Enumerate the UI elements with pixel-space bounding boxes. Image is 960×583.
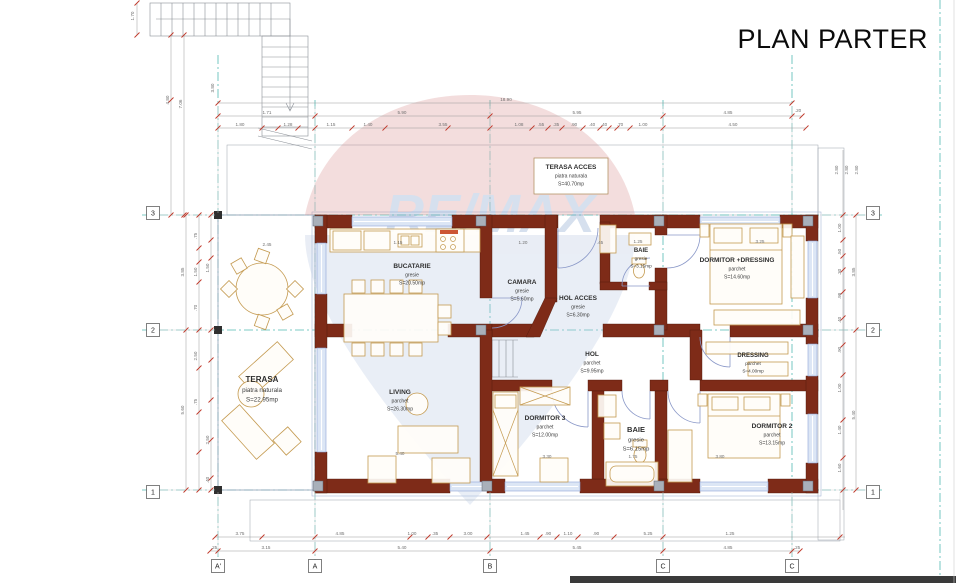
room-area: S=40.70mp — [558, 181, 584, 187]
dim-label: 3.30 — [543, 454, 552, 459]
dim-label: 1.25 — [726, 531, 735, 536]
dim-label: 1.71 — [263, 110, 272, 115]
room-label: TERASA — [246, 375, 279, 384]
dim-label: 5.40 — [396, 451, 405, 456]
dim-label: 3.00 — [464, 531, 473, 536]
grid-bubble-label: C — [660, 564, 665, 571]
dim-label: 1.10 — [564, 531, 573, 536]
dormitor-dressing-door — [667, 235, 700, 268]
dim-label: 1.80 — [236, 122, 245, 127]
dim-label: .90 — [545, 531, 552, 536]
dormitor2-door — [668, 391, 700, 423]
room-area: S=20.50mp — [399, 280, 425, 286]
plan-title: PLAN PARTER — [737, 24, 928, 55]
room-label: DORMITOR 3 — [525, 415, 566, 422]
dim-label: 18.90 — [500, 97, 512, 102]
wardrobe — [714, 310, 800, 325]
right-sidewalk-paving — [818, 148, 844, 540]
dim-label: 1.00 — [837, 383, 842, 392]
dim-label: 1.45 — [521, 531, 530, 536]
dim-label: 7.06 — [178, 99, 183, 108]
dim-label: 1.75 — [629, 454, 638, 459]
footer-bar — [570, 576, 956, 583]
dim-label: 3.80 — [716, 454, 725, 459]
living-sofa — [398, 426, 458, 453]
dim-label: .35 — [432, 531, 439, 536]
dim-label: 1.08 — [515, 122, 524, 127]
dim-label: 3.80 — [210, 83, 215, 92]
dim-label: 2.45 — [263, 242, 272, 247]
room-finish: gresie — [635, 256, 648, 261]
dim-label: .25 — [211, 545, 218, 550]
dim-label: 1.15 — [327, 122, 336, 127]
dim-label: 1.70 — [130, 11, 135, 20]
dim-label: .70 — [193, 304, 198, 311]
room-finish: piatra naturala — [555, 174, 588, 180]
room-area: S=14.60mp — [724, 274, 750, 280]
grid-bubble-label: 2 — [151, 328, 155, 335]
dim-label: .90 — [593, 531, 600, 536]
dim-label: 1.60 — [837, 463, 842, 472]
room-label: TERASA ACCES — [546, 164, 597, 171]
wardrobe-dormitor2 — [668, 430, 692, 482]
grid-bubble-label: 3 — [151, 211, 155, 218]
room-finish: gresie — [515, 289, 529, 295]
dim-label: 1.00 — [639, 122, 648, 127]
room-label: DRESSING — [737, 353, 769, 359]
room-label: BAIE — [634, 248, 648, 254]
room-label: HOL — [585, 351, 599, 358]
dim-label: 3.25 — [756, 239, 765, 244]
room-finish: gresie — [628, 438, 644, 444]
dim-label: .25 — [794, 545, 801, 550]
grid-bubble-label: A — [313, 564, 318, 571]
room-area: S=4.00mp — [742, 368, 764, 373]
dim-label: 3.85 — [851, 267, 856, 276]
dim-label: 5.40 — [398, 545, 407, 550]
room-area: S=6.15mp — [623, 446, 650, 452]
room-area: S=12.00mp — [532, 432, 558, 438]
dim-label: 1.00 — [408, 531, 417, 536]
room-finish: gresie — [571, 305, 585, 311]
dim-label: .70 — [617, 122, 624, 127]
dim-label: .20 — [795, 108, 802, 113]
exterior-stairs — [150, 3, 312, 149]
room-area: S=9.95mp — [580, 368, 603, 374]
bathroom-sink — [598, 395, 616, 417]
room-finish: parchet — [392, 399, 409, 405]
room-area: S=22.95mp — [246, 396, 279, 403]
dim-label: 4.85 — [336, 531, 345, 536]
dim-label: .40 — [589, 122, 596, 127]
grid-bubble-label: 1 — [871, 490, 875, 497]
grid-bubble-label: 2 — [871, 328, 875, 335]
dim-label: .90 — [837, 346, 842, 353]
dim-label: 5.45 — [573, 545, 582, 550]
room-area: S=5.60mp — [510, 296, 533, 302]
dim-label: 5.60 — [180, 405, 185, 414]
dim-label: .40 — [837, 316, 842, 323]
dim-label: 1.40 — [364, 122, 373, 127]
room-finish: parchet — [584, 361, 601, 367]
grid-bubble-label: 3 — [871, 211, 875, 218]
room-finish: parchet — [745, 361, 761, 366]
room-finish: gresie — [405, 273, 419, 279]
grid-bubble-label: C — [789, 564, 794, 571]
room-label: HOL ACCES — [559, 295, 598, 302]
dim-label: 3.85 — [180, 267, 185, 276]
dim-label: .98 — [837, 292, 842, 299]
room-label: BUCATARIE — [393, 263, 431, 270]
dim-label: .75 — [193, 232, 198, 239]
dim-label: .75 — [193, 398, 198, 405]
terrace-post — [214, 326, 222, 334]
dim-label: 1.50 — [193, 267, 198, 276]
dim-label: 3.75 — [236, 531, 245, 536]
dim-label: 1.00 — [837, 223, 842, 232]
grid-bubble-label: A' — [215, 564, 221, 571]
dim-label: .35 — [553, 122, 560, 127]
grid-bubble-label: 1 — [151, 490, 155, 497]
dim-label: 5.95 — [573, 110, 582, 115]
dim-label: .90 — [571, 122, 578, 127]
dim-label: 3.55 — [439, 122, 448, 127]
room-finish: parchet — [729, 267, 746, 273]
baie-bottom-door — [622, 391, 650, 419]
dim-label: 4.85 — [724, 110, 733, 115]
floor-plan-page: RE/MAX — [0, 0, 960, 583]
dim-label: 5.40 — [851, 410, 856, 419]
room-finish: piatra naturala — [242, 387, 282, 394]
grid-bubble-label: B — [488, 564, 493, 571]
room-label: BAIE — [627, 425, 645, 434]
dim-label: .30 — [837, 268, 842, 275]
room-area: S=6.30mp — [566, 312, 589, 318]
dim-label: 2.80 — [844, 165, 849, 174]
dim-label: 1.20 — [519, 240, 528, 245]
dim-label: 2.50 — [193, 351, 198, 360]
dim-label: 5.25 — [644, 531, 653, 536]
room-label: DORMITOR +DRESSING — [700, 257, 775, 264]
dim-label: .55 — [538, 122, 545, 127]
room-finish: parchet — [764, 433, 781, 439]
dim-label: 2.80 — [854, 165, 859, 174]
dim-label: 2.50 — [205, 435, 210, 444]
dim-label: 1.50 — [205, 263, 210, 272]
shower — [600, 225, 616, 253]
dim-label: .40 — [205, 476, 210, 483]
dim-label: 1.15 — [394, 240, 403, 245]
dim-label: 2.80 — [834, 165, 839, 174]
dim-label: 3.15 — [262, 545, 271, 550]
dim-label: .45 — [597, 240, 604, 245]
terrace-table — [236, 263, 288, 315]
dim-label: 1.28 — [284, 122, 293, 127]
floor-plan-drawing: RE/MAX — [0, 0, 960, 583]
dim-label: 4.50 — [729, 122, 738, 127]
room-finish: parchet — [537, 425, 554, 431]
dim-label: .40 — [601, 122, 608, 127]
room-label: LIVING — [389, 389, 411, 396]
room-label: CAMARA — [508, 279, 537, 286]
dim-label: 1.25 — [634, 239, 643, 244]
dim-label: 1.40 — [837, 425, 842, 434]
dim-label: 4.85 — [724, 545, 733, 550]
room-area: S=3.15mp — [630, 263, 652, 268]
room-area: S=26.30mp — [387, 406, 413, 412]
room-label: DORMITOR 2 — [752, 423, 793, 430]
dim-label: 4.80 — [165, 95, 170, 104]
dim-label: 5.90 — [398, 110, 407, 115]
room-area: S=13.15mp — [759, 440, 785, 446]
dim-label: .50 — [837, 248, 842, 255]
dining-table — [344, 294, 438, 342]
